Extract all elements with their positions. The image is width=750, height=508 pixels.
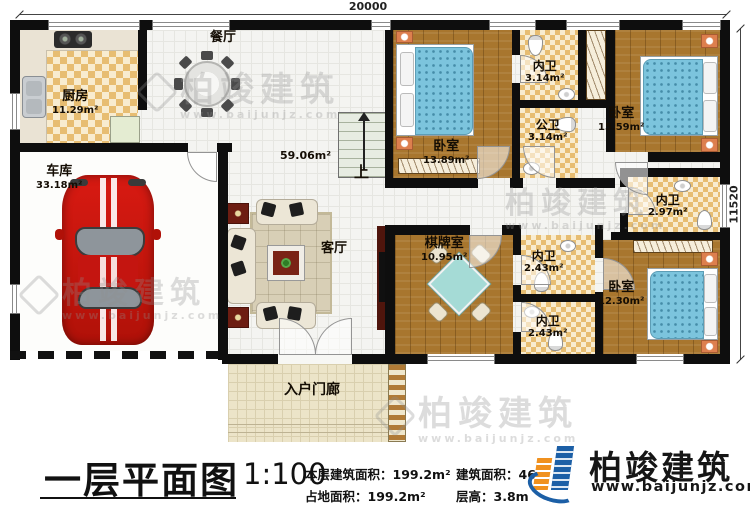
window [566,20,620,30]
closet [586,30,606,100]
kitchen-sink-icon [22,76,46,118]
room-name: 内卫 [524,250,563,263]
room-name: 棋牌室 [421,237,467,252]
dimension-height-label: 11520 [728,183,741,227]
pillow [704,274,717,303]
room-label-ensuite2: 内卫 2.97m² [648,194,687,219]
room-label-ensuite3: 内卫 2.43m² [524,250,563,275]
pillow [703,100,717,132]
wall-garage-hall [218,143,228,360]
room-area: 12.30m² [598,296,644,307]
watermark-url: www.baijunjz.com [180,108,340,121]
dimension-line-top [20,14,727,15]
room-area: 33.18m² [36,180,82,191]
room-area: 2.97m² [648,207,687,218]
room-label-bedroom1: 卧室 13.89m² [423,140,469,166]
window [489,20,536,30]
watermark-brand: 柏竣建筑 [180,62,340,111]
room-area: 3.14m² [525,73,564,84]
bed-blanket [650,271,704,339]
room-label-bedroom3: 卧室 12.30m² [598,281,644,307]
watermark-logo-icon [374,394,416,436]
stairs-arrow-icon [358,112,370,121]
room-name: 公卫 [528,119,567,132]
window [636,354,684,364]
bed-blanket [643,59,703,135]
wall-chess-bath [513,332,521,354]
wall-outer-bottom [222,354,278,364]
car-headlight [128,179,146,186]
car-mirror [55,229,64,240]
car-mirror [152,229,161,240]
sink-basin [26,99,42,114]
nightstand [701,138,718,152]
end-table [227,203,249,224]
wall-bedroom2-bottom [648,152,720,162]
room-name: 内卫 [648,194,687,207]
watermark: 柏竣建筑 www.baijunjz.com [380,386,578,445]
end-table [227,307,249,328]
plant-icon [281,258,291,268]
sink-icon [674,180,691,192]
window [427,354,495,364]
toilet-icon [697,210,712,230]
wall-kitchen-garage [10,143,188,152]
wall-bath-closet [578,30,586,103]
window [152,20,230,30]
porch-step-line [228,424,388,425]
sheet-title: 一层平面图 [44,450,239,504]
room-area: 2.43m² [528,328,567,339]
nightstand [701,34,718,48]
wall-bedroom3-top [611,232,720,240]
floor-built-area: 本层建筑面积：199.2m² [305,464,451,483]
room-name: 卧室 [423,140,469,155]
bed-bedroom3 [647,268,718,340]
floor-height: 层高：3.8m [456,486,529,505]
bed-blanket [415,47,473,135]
room-name: 卧室 [598,107,644,122]
wall-chess-left [385,225,395,354]
watermark-text: 柏竣建筑 www.baijunjz.com [180,62,340,121]
watermark-logo-icon [18,274,60,316]
watermark-text: 柏竣建筑 www.baijunjz.com [505,178,665,232]
room-area: 10.95m² [421,252,467,263]
room-label-kitchen: 厨房 11.29m² [52,90,98,116]
porch-step-line [228,432,388,433]
room-label-dining: 餐厅 [210,31,236,46]
room-name: 车库 [36,165,82,180]
room-label-ensuite1: 内卫 3.14m² [525,60,564,85]
window [10,93,20,130]
pillow [704,307,717,336]
window [48,20,140,30]
room-area: 11.29m² [52,105,98,116]
room-label-living: 客厅 [321,242,347,257]
room-label-publicbath: 公卫 3.14m² [528,119,567,144]
window [10,284,20,314]
watermark: 柏竣建筑 www.baijunjz.com [505,178,665,232]
watermark-url: www.baijunjz.com [505,219,665,232]
nightstand [396,31,413,43]
room-area: 15.59m² [598,122,644,133]
watermark: 柏竣建筑 www.baijunjz.com [142,62,340,121]
watermark-brand: 柏竣建筑 [62,268,222,312]
room-label-garage: 车库 33.18m² [36,165,82,191]
room-area: 2.43m² [524,263,563,274]
hall-area-label: 59.06m² [280,150,331,162]
watermark: 柏竣建筑 www.baijunjz.com [24,268,222,322]
entrance-threshold [278,354,352,364]
wall-ensuite-divider [513,294,603,302]
room-label-ensuite4: 内卫 2.43m² [528,315,567,340]
coffee-table-icon [267,245,305,281]
logo-swoosh [524,465,583,508]
stove-icon [54,31,92,48]
window [682,20,721,30]
pillow [400,93,414,127]
room-name: 内卫 [525,60,564,73]
floor-plan-sheet: 20000 11520 [0,0,750,508]
title-underline [40,497,236,499]
fridge-icon [110,116,140,143]
wall-corridor-top [385,178,478,188]
sink-basin [26,81,42,96]
car-windshield [75,227,145,257]
room-name: 卧室 [598,281,644,296]
porch-floor [228,364,390,442]
wall-bedroom1-bath [512,83,520,178]
brand-logo-icon [527,442,585,500]
watermark-url: www.baijunjz.com [62,309,222,322]
car-stripe [111,178,117,230]
watermark-text: 柏竣建筑 www.baijunjz.com [418,386,578,445]
room-name: 客厅 [321,242,347,257]
bed-bedroom1 [396,44,474,136]
sofa-cushion [289,202,304,217]
wall-chess-top [385,225,470,235]
room-name: 餐厅 [210,31,236,46]
wall-bedroom1-left [385,30,393,188]
nightstand [396,137,413,150]
dimension-width-label: 20000 [340,0,396,13]
watermark-brand: 柏竣建筑 [418,386,578,435]
watermark-brand: 柏竣建筑 [505,178,665,222]
pillow [703,62,717,94]
nightstand [701,252,718,266]
dining-chair [201,51,213,60]
room-label-bedroom2: 卧室 15.59m² [598,107,644,133]
stairs-up-label: 上 [354,164,369,181]
bed-bedroom2 [640,56,718,136]
room-area: 3.14m² [528,132,567,143]
room-label-chessroom: 棋牌室 10.95m² [421,237,467,263]
room-name: 内卫 [528,315,567,328]
watermark-logo-icon [136,70,178,112]
pillow [400,52,414,86]
window [371,20,391,30]
watermark-text: 柏竣建筑 www.baijunjz.com [62,268,222,322]
room-name: 厨房 [52,90,98,105]
brand-website: www.baijunjz.com [591,479,750,495]
land-area: 占地面积：199.2m² [305,486,426,505]
room-area: 13.89m² [423,155,469,166]
nightstand [701,340,718,353]
wall-bedroom1-bath [512,30,520,55]
garage-door-dashed [10,351,218,359]
car-stripe [100,178,106,230]
room-label-porch: 入户门廊 [284,383,340,399]
